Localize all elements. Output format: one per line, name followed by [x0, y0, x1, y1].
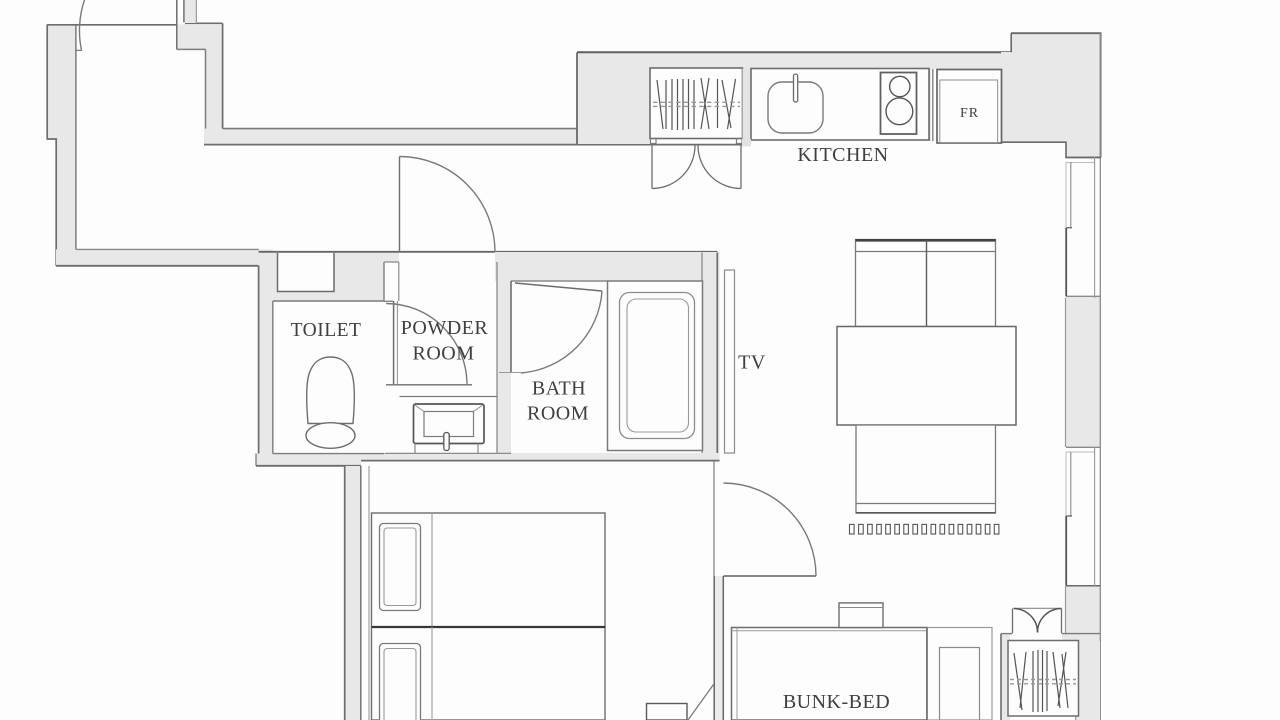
- svg-text:TV: TV: [738, 352, 766, 374]
- svg-text:TOILET: TOILET: [291, 320, 362, 341]
- svg-text:KITCHEN: KITCHEN: [797, 144, 888, 166]
- svg-text:ROOM: ROOM: [412, 343, 474, 365]
- svg-text:ROOM: ROOM: [527, 403, 589, 425]
- svg-text:FR: FR: [960, 106, 979, 121]
- svg-text:POWDER: POWDER: [401, 317, 489, 339]
- svg-text:BATH: BATH: [532, 378, 586, 400]
- svg-text:BUNK-BED: BUNK-BED: [783, 691, 890, 713]
